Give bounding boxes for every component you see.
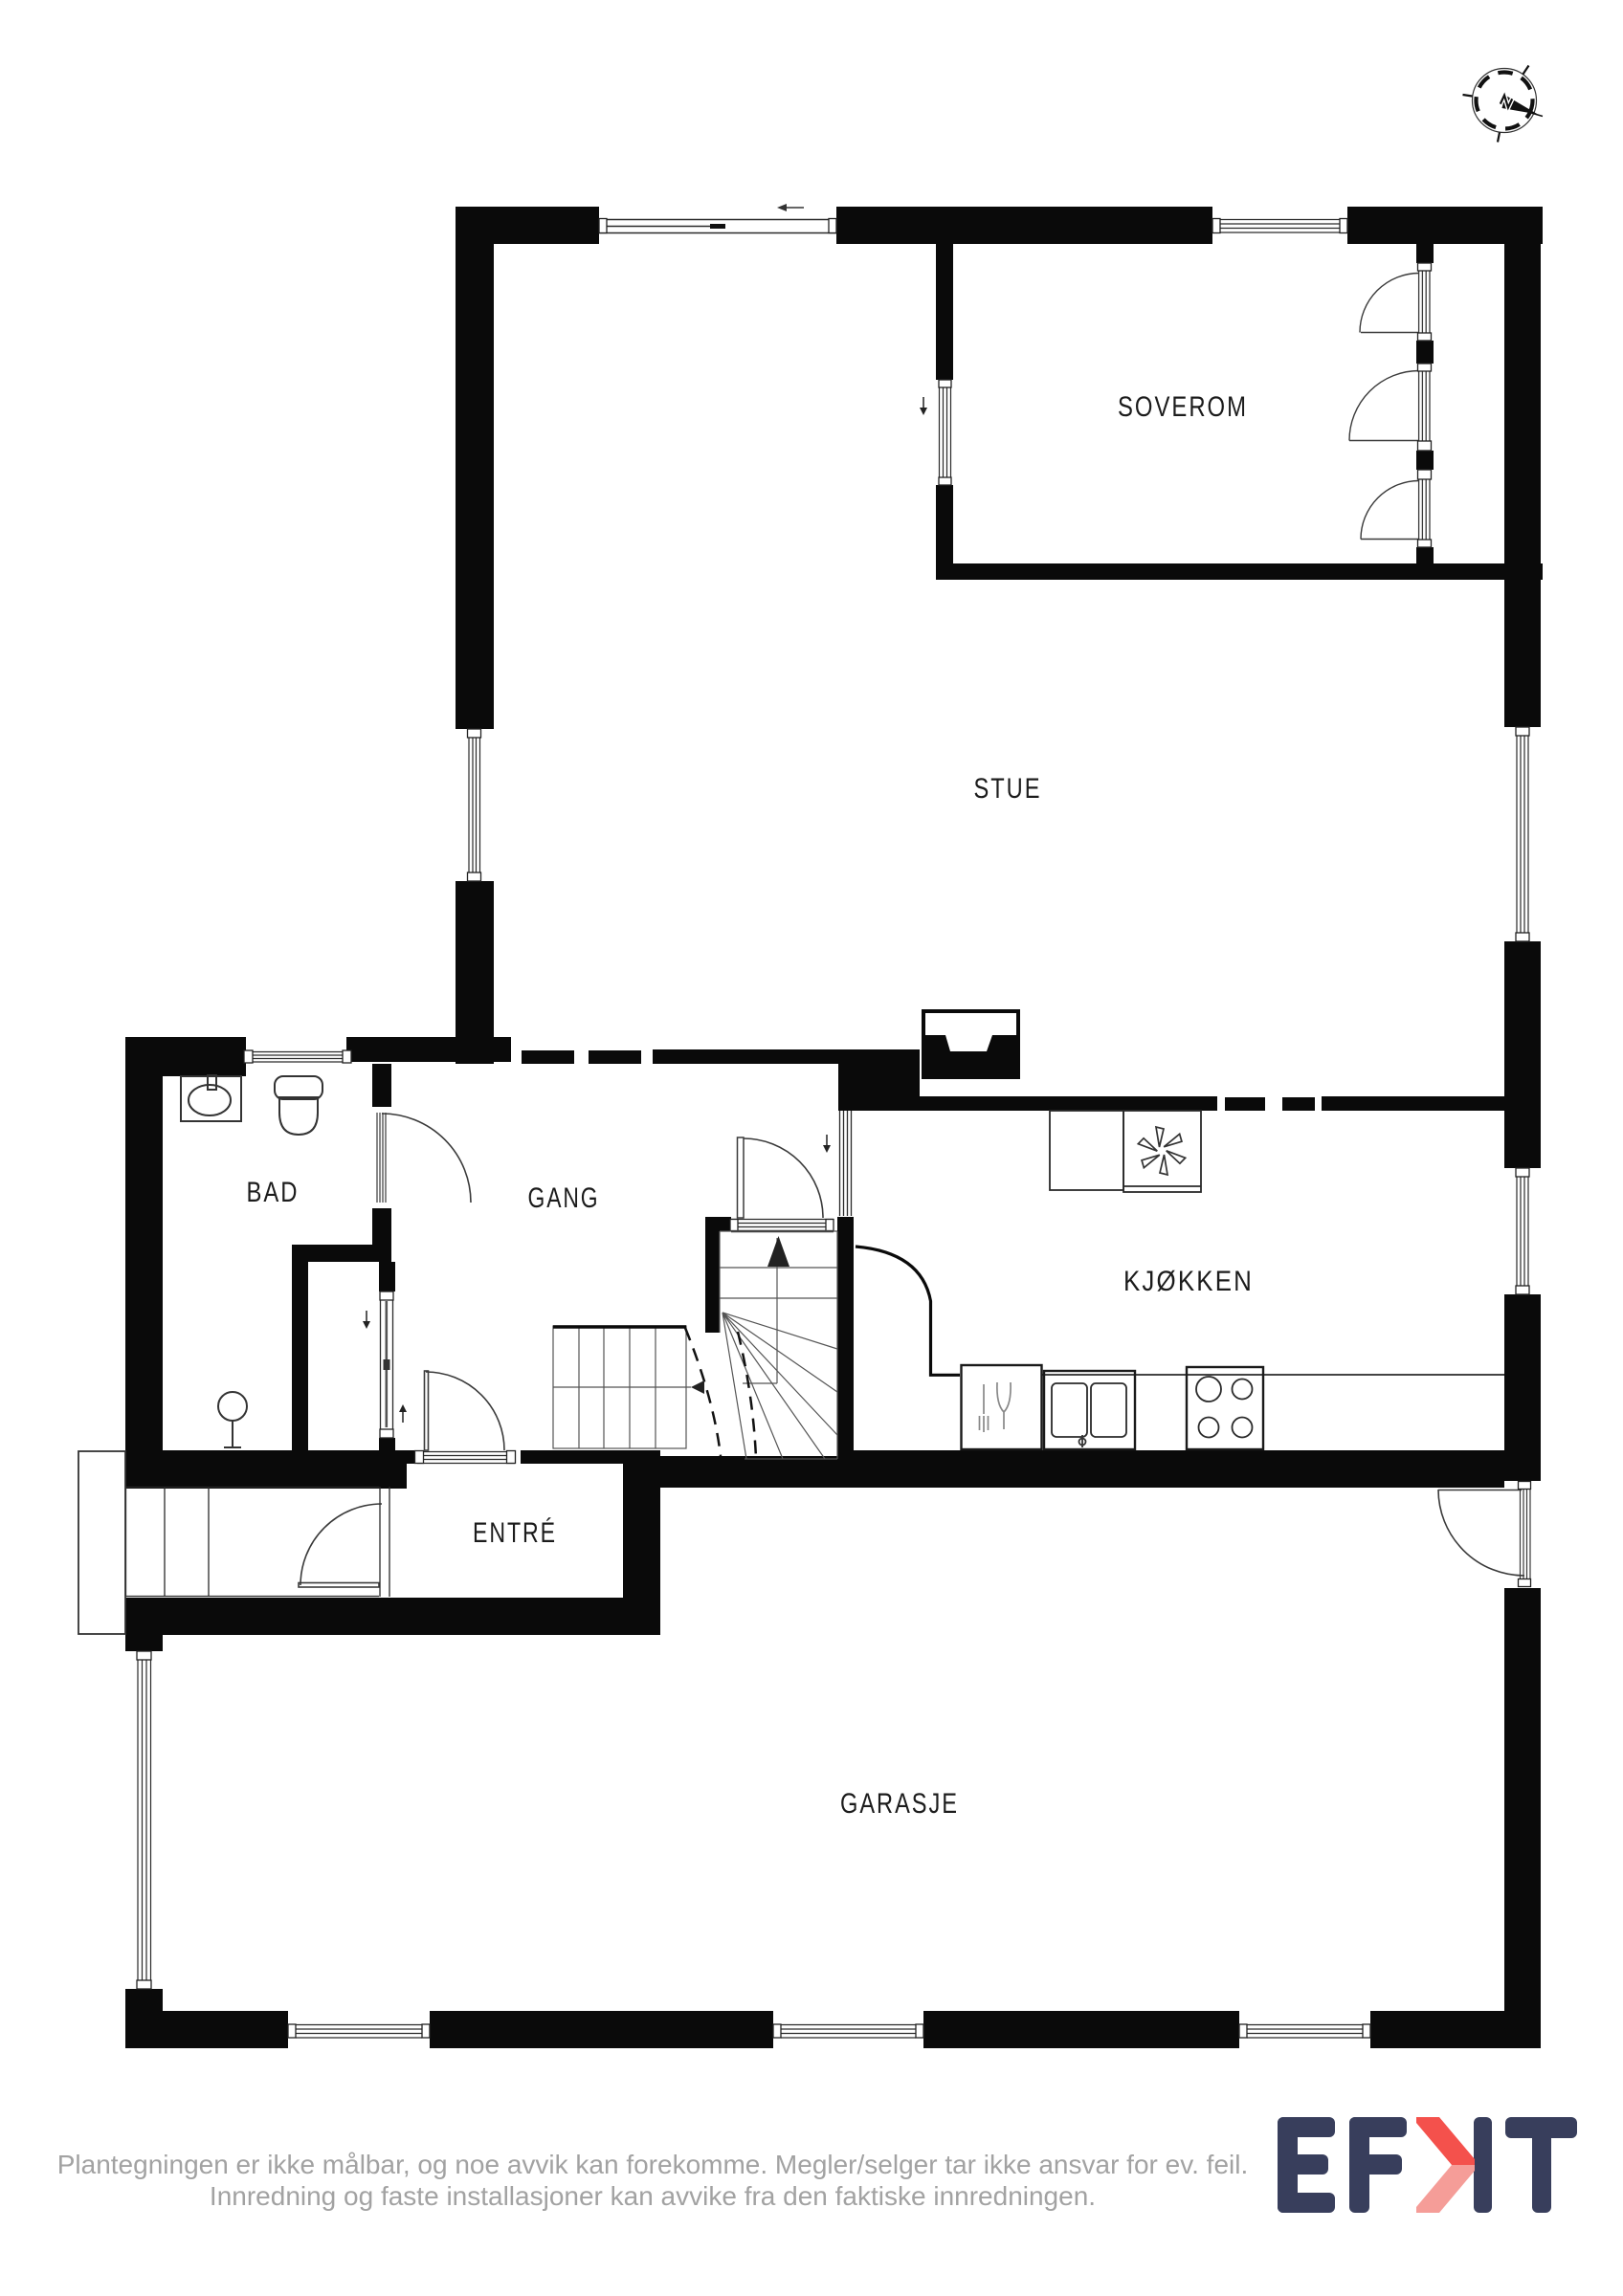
svg-text:Plantegningen er ikke målbar,: Plantegningen er ikke målbar, og noe avv… <box>57 2150 1249 2179</box>
svg-text:ENTRÉ: ENTRÉ <box>473 1517 557 1549</box>
svg-text:GARASJE: GARASJE <box>840 1788 959 1820</box>
svg-text:STUE: STUE <box>974 773 1042 805</box>
svg-text:Innredning og faste installasj: Innredning og faste installasjoner kan a… <box>210 2181 1096 2211</box>
svg-text:GANG: GANG <box>528 1182 600 1214</box>
svg-text:BAD: BAD <box>247 1177 300 1208</box>
svg-text:SOVEROM: SOVEROM <box>1118 391 1248 423</box>
svg-text:KJØKKEN: KJØKKEN <box>1123 1266 1254 1297</box>
